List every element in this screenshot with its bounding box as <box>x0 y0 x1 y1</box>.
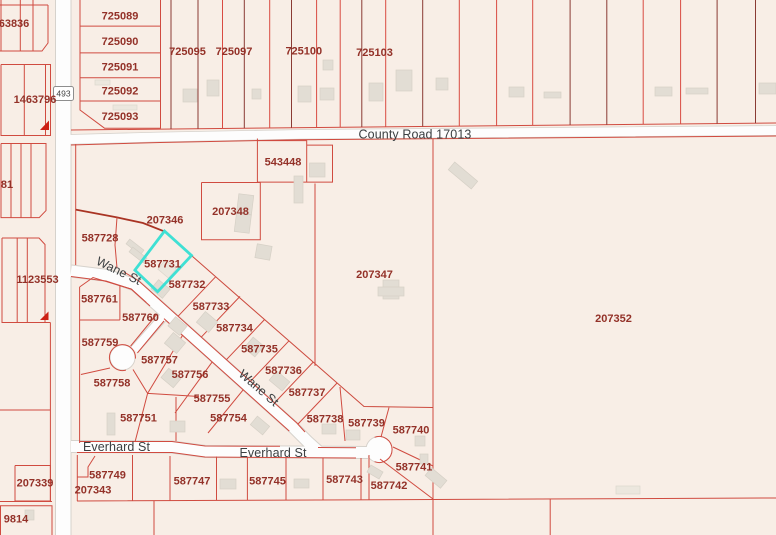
svg-text:543448: 543448 <box>265 157 302 169</box>
svg-text:587751: 587751 <box>120 413 157 425</box>
svg-text:1463796: 1463796 <box>14 94 57 106</box>
svg-text:9814: 9814 <box>4 514 29 526</box>
svg-text:587739: 587739 <box>348 418 385 430</box>
svg-text:587743: 587743 <box>326 474 363 486</box>
svg-text:725092: 725092 <box>102 86 139 98</box>
svg-text:587758: 587758 <box>94 378 131 390</box>
svg-text:207346: 207346 <box>147 215 184 227</box>
svg-text:207348: 207348 <box>212 206 249 218</box>
svg-text:587734: 587734 <box>216 323 254 335</box>
svg-text:1123553: 1123553 <box>16 274 58 286</box>
svg-text:587736: 587736 <box>265 365 302 377</box>
svg-text:Everhard St: Everhard St <box>239 446 307 460</box>
svg-text:587745: 587745 <box>249 476 286 488</box>
svg-text:587737: 587737 <box>289 387 326 399</box>
svg-text:207339: 207339 <box>17 478 54 490</box>
svg-text:725091: 725091 <box>102 62 139 74</box>
svg-text:587749: 587749 <box>89 470 126 482</box>
svg-text:207343: 207343 <box>75 485 112 497</box>
svg-text:587733: 587733 <box>193 301 230 313</box>
svg-text:81: 81 <box>1 179 13 191</box>
svg-text:587740: 587740 <box>393 425 430 437</box>
svg-text:587760: 587760 <box>122 312 159 324</box>
svg-text:587756: 587756 <box>172 369 209 381</box>
svg-text:587732: 587732 <box>169 279 206 291</box>
svg-text:725093: 725093 <box>102 111 139 123</box>
svg-text:587754: 587754 <box>210 413 248 425</box>
svg-text:Everhard St: Everhard St <box>83 440 151 454</box>
svg-text:725100: 725100 <box>285 46 322 58</box>
svg-text:587759: 587759 <box>82 337 119 349</box>
svg-text:587742: 587742 <box>371 480 408 492</box>
svg-text:725097: 725097 <box>216 46 253 58</box>
svg-text:587757: 587757 <box>141 355 178 367</box>
svg-text:207347: 207347 <box>356 269 393 281</box>
svg-text:725103: 725103 <box>356 47 393 59</box>
svg-text:587731: 587731 <box>144 259 181 271</box>
svg-text:493: 493 <box>56 89 70 99</box>
svg-text:587735: 587735 <box>241 344 278 356</box>
svg-text:587755: 587755 <box>194 393 231 405</box>
svg-text:587747: 587747 <box>174 476 211 488</box>
svg-text:587738: 587738 <box>307 414 344 426</box>
svg-text:County Road 17013: County Road 17013 <box>359 128 472 142</box>
svg-text:587741: 587741 <box>396 462 433 474</box>
svg-text:207352: 207352 <box>595 313 632 325</box>
svg-text:725095: 725095 <box>169 46 206 58</box>
svg-text:725090: 725090 <box>102 36 139 48</box>
svg-text:587761: 587761 <box>81 294 118 306</box>
svg-text:587728: 587728 <box>82 233 119 245</box>
svg-text:725089: 725089 <box>102 11 139 23</box>
svg-text:63836: 63836 <box>0 18 29 30</box>
